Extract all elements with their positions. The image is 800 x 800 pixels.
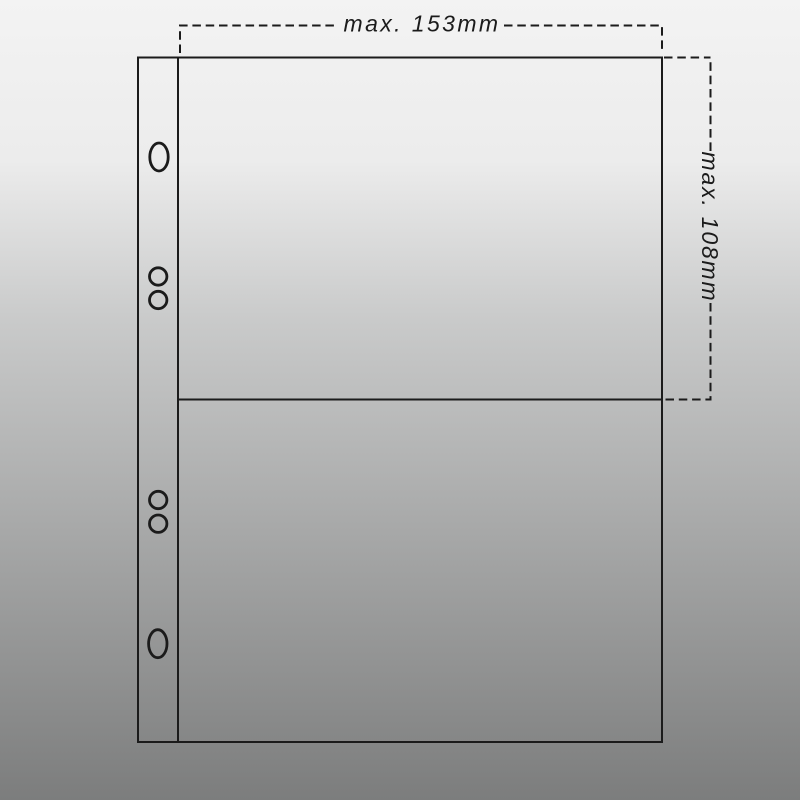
svg-text:max. 153mm: max. 153mm [344,11,501,37]
svg-text:max. 108mm: max. 108mm [697,152,723,303]
